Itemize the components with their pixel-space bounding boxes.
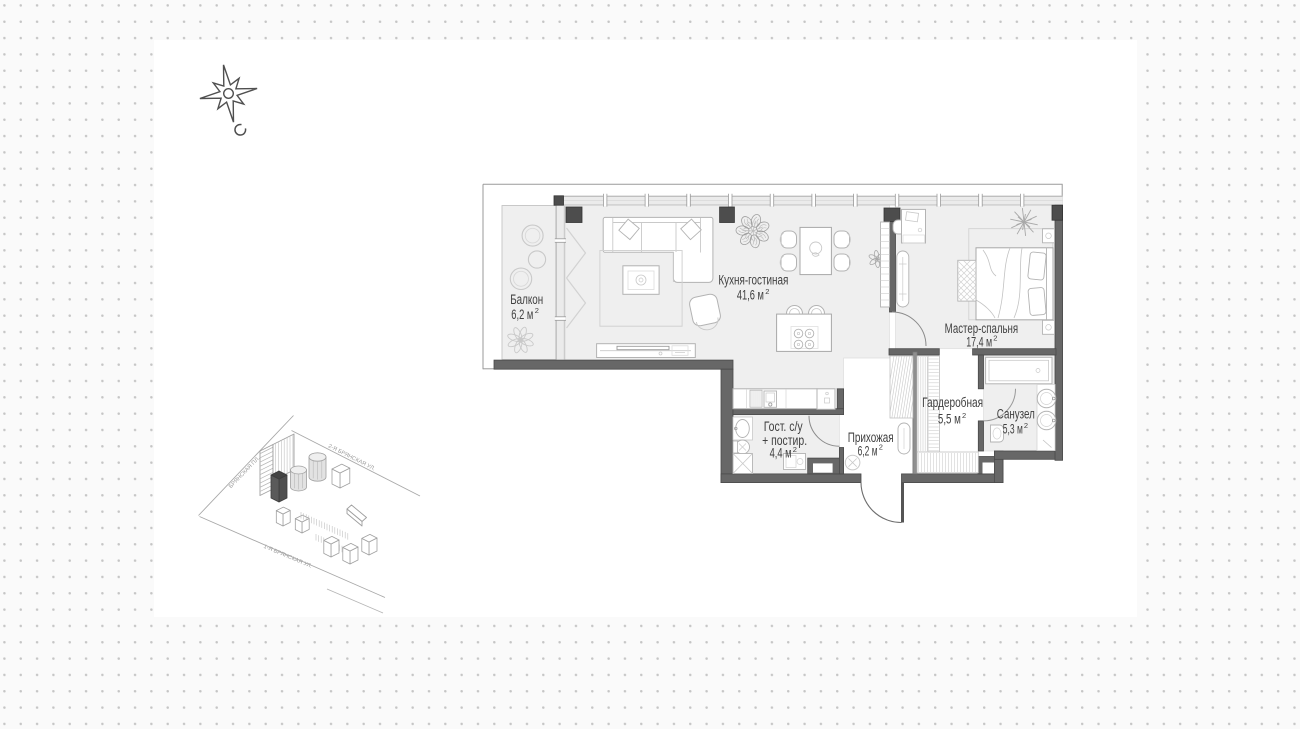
svg-text:Санузел: Санузел [997,406,1035,421]
svg-text:41,6 м: 41,6 м [737,288,764,303]
svg-text:6,2 м: 6,2 м [858,443,878,458]
svg-text:2: 2 [1024,421,1028,430]
svg-text:6,2 м: 6,2 м [511,307,533,322]
svg-text:2: 2 [793,445,797,454]
svg-text:2: 2 [879,443,883,452]
svg-text:2: 2 [993,334,997,343]
svg-text:17,4 м: 17,4 м [966,334,992,349]
svg-text:2: 2 [535,306,539,315]
svg-text:2: 2 [962,411,966,420]
svg-text:Балкон: Балкон [510,292,543,307]
svg-text:Гардеробная: Гардеробная [922,395,983,410]
svg-text:4,4 м: 4,4 м [770,446,792,461]
svg-text:5,5 м: 5,5 м [938,412,961,427]
svg-text:Кухня-гостиная: Кухня-гостиная [718,273,788,288]
svg-text:5,3 м: 5,3 м [1003,422,1023,437]
svg-text:Гост. с/у: Гост. с/у [764,419,803,434]
svg-text:2: 2 [765,287,769,296]
